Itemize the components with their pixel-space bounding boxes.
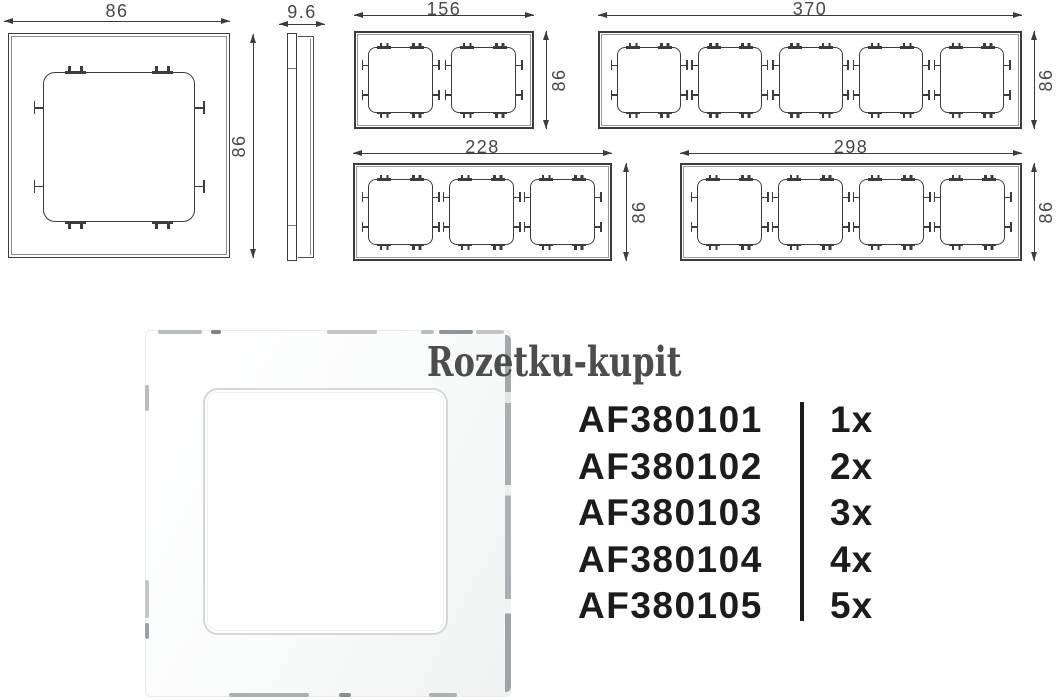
mount-pin-icon bbox=[691, 60, 698, 70]
mount-clip-icon bbox=[410, 112, 424, 118]
drawing-3gang-socket-row bbox=[368, 179, 595, 245]
mount-clip-icon bbox=[377, 43, 391, 49]
mount-pin-icon bbox=[691, 90, 698, 100]
product-gang-count: 5x bbox=[830, 585, 920, 627]
mount-clip-icon bbox=[377, 175, 391, 181]
mount-pin-icon bbox=[516, 60, 523, 70]
mount-pin-icon bbox=[923, 60, 930, 70]
mount-pin-icon bbox=[853, 192, 860, 202]
table-row: AF380105 5x bbox=[578, 584, 920, 628]
mount-pin-icon bbox=[1004, 60, 1011, 70]
mount-pin-icon bbox=[445, 60, 452, 70]
dimension-line-height-5gang bbox=[1034, 31, 1035, 129]
mount-clip-icon bbox=[868, 175, 882, 181]
mount-clip-icon bbox=[572, 244, 586, 250]
mount-clip-icon bbox=[152, 221, 173, 229]
mount-pin-icon bbox=[843, 222, 850, 232]
reflection-streak bbox=[211, 330, 221, 334]
mount-pin-icon bbox=[761, 60, 768, 70]
socket-window bbox=[449, 179, 514, 245]
reflection-streak bbox=[339, 693, 351, 697]
mount-clip-icon bbox=[707, 112, 721, 118]
mount-pin-icon bbox=[923, 90, 930, 100]
mount-pin-icon bbox=[772, 222, 779, 232]
reflection-streak bbox=[145, 623, 149, 639]
mount-pin-icon bbox=[772, 60, 779, 70]
mount-clip-icon bbox=[788, 43, 802, 49]
mount-pin-icon bbox=[195, 101, 205, 114]
dimension-line-height-4gang bbox=[1034, 163, 1035, 261]
dimension-label-height-3gang: 86 bbox=[630, 190, 648, 234]
dimension-line-height-3gang bbox=[626, 163, 627, 261]
mount-pin-icon bbox=[691, 192, 698, 202]
dimension-label-width-2gang: 156 bbox=[354, 0, 534, 18]
mount-clip-icon bbox=[739, 244, 753, 250]
mount-pin-icon bbox=[772, 90, 779, 100]
socket-window bbox=[43, 72, 195, 222]
mount-pin-icon bbox=[853, 222, 860, 232]
mount-pin-icon bbox=[842, 90, 849, 100]
mount-pin-icon bbox=[842, 60, 849, 70]
dimension-line-width-1gang bbox=[4, 21, 230, 22]
mount-clip-icon bbox=[982, 175, 996, 181]
reflection-streak bbox=[158, 330, 202, 334]
product-code: AF380102 bbox=[578, 446, 830, 488]
dimension-line-height-2gang bbox=[546, 31, 547, 129]
socket-window bbox=[940, 179, 1005, 245]
dimension-label-width-3gang: 228 bbox=[353, 138, 612, 156]
mount-pin-icon bbox=[445, 90, 452, 100]
socket-window bbox=[530, 179, 595, 245]
mount-clip-icon bbox=[868, 112, 882, 118]
table-row: AF380103 3x bbox=[578, 491, 920, 535]
mount-pin-icon bbox=[443, 222, 450, 232]
drawing-5gang-socket-row bbox=[617, 47, 1004, 113]
mount-clip-icon bbox=[658, 43, 672, 49]
socket-window bbox=[368, 47, 433, 113]
mount-pin-icon bbox=[195, 180, 205, 193]
mount-pin-icon bbox=[524, 222, 531, 232]
drawing-side-view-front-plate bbox=[287, 33, 297, 261]
reflection-streak bbox=[476, 330, 504, 334]
mount-pin-icon bbox=[433, 90, 440, 100]
socket-window bbox=[940, 47, 1004, 113]
drawing-side-view-back-plate bbox=[298, 36, 314, 258]
mount-pin-icon bbox=[514, 192, 521, 202]
mount-pin-icon bbox=[595, 222, 602, 232]
mount-clip-icon bbox=[493, 112, 507, 118]
dimension-label-width-5gang: 370 bbox=[598, 0, 1022, 18]
dimension-label-height-1gang: 86 bbox=[230, 124, 248, 168]
dimension-line-thickness bbox=[279, 24, 325, 25]
mount-clip-icon bbox=[949, 175, 963, 181]
mount-clip-icon bbox=[787, 244, 801, 250]
mount-pin-icon bbox=[681, 60, 688, 70]
reflection-streak bbox=[229, 693, 309, 697]
product-code: AF380101 bbox=[578, 399, 830, 441]
reflection-streak bbox=[421, 330, 434, 334]
mount-pin-icon bbox=[514, 222, 521, 232]
mount-clip-icon bbox=[820, 175, 834, 181]
product-code: AF380103 bbox=[578, 492, 830, 534]
mount-clip-icon bbox=[949, 112, 963, 118]
mount-pin-icon bbox=[762, 192, 769, 202]
dimension-label-height-2gang: 86 bbox=[550, 58, 568, 102]
mount-clip-icon bbox=[626, 112, 640, 118]
socket-window bbox=[698, 47, 762, 113]
mount-pin-icon bbox=[595, 192, 602, 202]
mount-pin-icon bbox=[843, 192, 850, 202]
mount-clip-icon bbox=[491, 244, 505, 250]
product-gang-count: 1x bbox=[830, 399, 920, 441]
drawing-1gang-socket-row bbox=[43, 72, 195, 222]
socket-window bbox=[617, 47, 681, 113]
mount-clip-icon bbox=[739, 43, 753, 49]
mount-clip-icon bbox=[460, 112, 474, 118]
mount-clip-icon bbox=[706, 244, 720, 250]
mount-clip-icon bbox=[739, 112, 753, 118]
drawing-2gang-socket-row bbox=[368, 47, 516, 113]
page-canvas: 86 86 9.6 156 86 370 86 228 86 298 86 bbox=[0, 0, 1056, 700]
socket-window bbox=[697, 179, 762, 245]
mount-clip-icon bbox=[539, 244, 553, 250]
watermark-logo-text: Rozetku-kupit bbox=[427, 340, 682, 384]
reflection-streak bbox=[145, 385, 149, 411]
socket-window bbox=[779, 47, 843, 113]
mount-pin-icon bbox=[433, 222, 440, 232]
mount-clip-icon bbox=[739, 175, 753, 181]
mount-clip-icon bbox=[707, 43, 721, 49]
mount-pin-icon bbox=[853, 90, 860, 100]
mount-pin-icon bbox=[691, 222, 698, 232]
mount-pin-icon bbox=[681, 90, 688, 100]
mount-pin-icon bbox=[34, 101, 44, 114]
mount-pin-icon bbox=[362, 222, 369, 232]
mount-clip-icon bbox=[410, 175, 424, 181]
mount-pin-icon bbox=[611, 60, 618, 70]
mount-clip-icon bbox=[152, 66, 173, 74]
socket-window bbox=[368, 179, 433, 245]
mount-clip-icon bbox=[460, 43, 474, 49]
mount-clip-icon bbox=[901, 244, 915, 250]
socket-window bbox=[778, 179, 843, 245]
mount-clip-icon bbox=[900, 112, 914, 118]
socket-window bbox=[451, 47, 516, 113]
mount-clip-icon bbox=[539, 175, 553, 181]
table-row: AF380101 1x bbox=[578, 398, 920, 442]
photo-frame-opening bbox=[203, 388, 448, 635]
mount-pin-icon bbox=[443, 192, 450, 202]
mount-clip-icon bbox=[572, 175, 586, 181]
mount-clip-icon bbox=[982, 244, 996, 250]
mount-clip-icon bbox=[658, 112, 672, 118]
mount-clip-icon bbox=[491, 175, 505, 181]
mount-clip-icon bbox=[868, 43, 882, 49]
reflection-streak bbox=[327, 330, 377, 334]
table-row: AF380104 4x bbox=[578, 538, 920, 582]
mount-pin-icon bbox=[1005, 222, 1012, 232]
mount-pin-icon bbox=[524, 192, 531, 202]
mount-pin-icon bbox=[611, 90, 618, 100]
mount-pin-icon bbox=[762, 222, 769, 232]
mount-clip-icon bbox=[626, 43, 640, 49]
reflection-streak bbox=[439, 330, 473, 334]
mount-clip-icon bbox=[377, 112, 391, 118]
mount-clip-icon bbox=[706, 175, 720, 181]
mount-pin-icon bbox=[362, 192, 369, 202]
reflection-streak bbox=[145, 580, 149, 618]
mount-pin-icon bbox=[772, 192, 779, 202]
mount-pin-icon bbox=[934, 192, 941, 202]
mount-clip-icon bbox=[901, 175, 915, 181]
product-code: AF380105 bbox=[578, 585, 830, 627]
mount-clip-icon bbox=[410, 244, 424, 250]
mount-pin-icon bbox=[362, 90, 369, 100]
mount-clip-icon bbox=[65, 66, 86, 74]
product-gang-count: 4x bbox=[830, 539, 920, 581]
mount-pin-icon bbox=[362, 60, 369, 70]
reflection-right-edge bbox=[505, 335, 511, 692]
mount-pin-icon bbox=[761, 90, 768, 100]
product-gang-count: 2x bbox=[830, 446, 920, 488]
table-row: AF380102 2x bbox=[578, 445, 920, 489]
mount-pin-icon bbox=[924, 222, 931, 232]
dimension-label-height-4gang: 86 bbox=[1037, 190, 1055, 234]
mount-clip-icon bbox=[65, 221, 86, 229]
mount-pin-icon bbox=[516, 90, 523, 100]
dimension-line-height-1gang bbox=[253, 34, 254, 258]
table-divider-line bbox=[800, 402, 804, 621]
product-code-table: AF380101 1x AF380102 2x AF380103 3x AF38… bbox=[578, 398, 920, 628]
socket-window bbox=[859, 179, 924, 245]
dimension-label-thickness: 9.6 bbox=[272, 3, 332, 21]
mount-clip-icon bbox=[458, 175, 472, 181]
socket-window bbox=[859, 47, 923, 113]
mount-clip-icon bbox=[819, 43, 833, 49]
mount-pin-icon bbox=[934, 60, 941, 70]
mount-clip-icon bbox=[900, 43, 914, 49]
mount-clip-icon bbox=[949, 244, 963, 250]
mount-pin-icon bbox=[924, 192, 931, 202]
mount-pin-icon bbox=[1004, 90, 1011, 100]
mount-clip-icon bbox=[493, 43, 507, 49]
dimension-label-height-5gang: 86 bbox=[1037, 58, 1055, 102]
reflection-streak bbox=[429, 693, 457, 697]
dimension-label-width-1gang: 86 bbox=[4, 2, 230, 20]
mount-clip-icon bbox=[820, 244, 834, 250]
mount-pin-icon bbox=[433, 60, 440, 70]
mount-clip-icon bbox=[949, 43, 963, 49]
mount-clip-icon bbox=[819, 112, 833, 118]
dimension-label-width-4gang: 298 bbox=[680, 138, 1022, 156]
product-code: AF380104 bbox=[578, 539, 830, 581]
mount-clip-icon bbox=[868, 244, 882, 250]
mount-clip-icon bbox=[981, 112, 995, 118]
product-gang-count: 3x bbox=[830, 492, 920, 534]
mount-pin-icon bbox=[934, 222, 941, 232]
mount-clip-icon bbox=[377, 244, 391, 250]
drawing-4gang-socket-row bbox=[697, 179, 1005, 245]
mount-clip-icon bbox=[981, 43, 995, 49]
mount-pin-icon bbox=[433, 192, 440, 202]
mount-pin-icon bbox=[853, 60, 860, 70]
mount-clip-icon bbox=[458, 244, 472, 250]
mount-clip-icon bbox=[788, 112, 802, 118]
mount-clip-icon bbox=[410, 43, 424, 49]
mount-clip-icon bbox=[787, 175, 801, 181]
mount-pin-icon bbox=[934, 90, 941, 100]
mount-pin-icon bbox=[34, 180, 44, 193]
mount-pin-icon bbox=[1005, 192, 1012, 202]
